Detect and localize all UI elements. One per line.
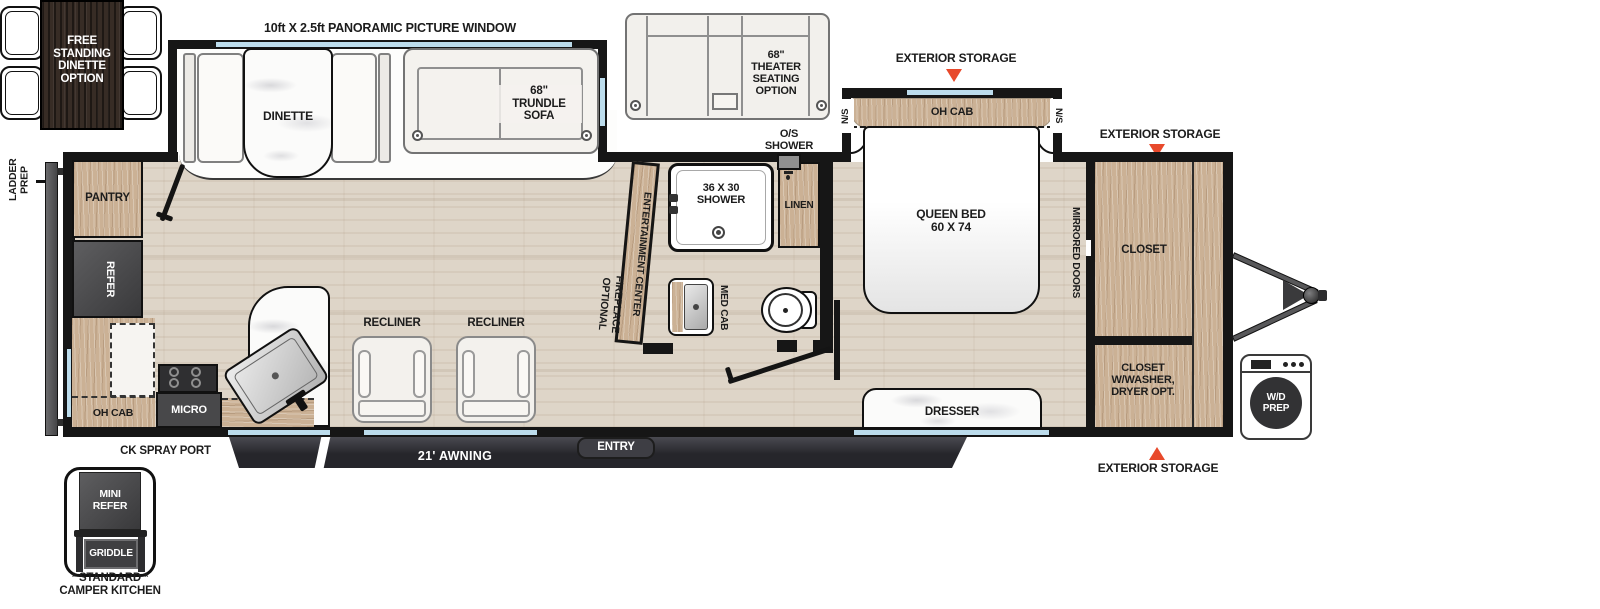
wd-prep-knob: [1283, 362, 1288, 367]
floorplan-canvas: FREE STANDING DINETTE OPTION 10ft X 2.5f…: [0, 0, 1600, 609]
refrigerator-label: REFER: [99, 246, 116, 312]
wall-closet-mid: [1086, 336, 1192, 345]
entry-label: ENTRY: [577, 441, 655, 454]
outside-shower: [777, 154, 801, 170]
fsd-chair-detail: [123, 71, 157, 115]
dinette-bench-seat: [331, 53, 377, 163]
dinette-bench-back: [378, 53, 391, 163]
shower-label: 36 X 30 SHOWER: [678, 182, 764, 206]
stove-burner: [169, 378, 179, 388]
trundle-sofa-label: 68" TRUNDLE SOFA: [496, 85, 582, 123]
recliner-2-arm: [462, 350, 475, 398]
theater-cupholder: [712, 93, 738, 110]
closet-label: CLOSET: [1102, 244, 1186, 257]
slide1-wall-left: [168, 40, 177, 162]
stove-burner: [191, 378, 201, 388]
wd-prep-label: W/D PREP: [1250, 392, 1302, 414]
kitchen-oh-cab-label: OH CAB: [76, 408, 150, 420]
dinette-bench-back: [183, 53, 196, 163]
fsd-chair-detail: [123, 11, 157, 55]
bedroom-oh-cab-label: OH CAB: [890, 106, 1014, 118]
slide1-side-window: [599, 77, 606, 127]
med-cab-counter: [672, 282, 683, 332]
exterior-storage-label-bottom: EXTERIOR STORAGE: [1080, 462, 1236, 475]
kitchen-oh-cab-outline: [110, 323, 155, 397]
recliner-2-arm: [517, 350, 530, 398]
theater-arm-line: [646, 16, 648, 116]
wd-prep-knob: [1299, 362, 1304, 367]
shower-valve: [669, 206, 678, 214]
ck-spray-port-label: CK SPRAY PORT: [93, 445, 238, 458]
outside-shower-faucet: [784, 171, 793, 174]
dinette-label: DINETTE: [245, 110, 331, 123]
shower-valve: [669, 194, 678, 202]
griddle-label: GRIDDLE: [82, 548, 140, 559]
bedroom-sliding-door: [834, 300, 840, 380]
exterior-storage-label-right: EXTERIOR STORAGE: [1084, 128, 1236, 141]
ladder-prep-label: LADDER PREP: [8, 150, 31, 210]
med-cab-faucet-dot: [693, 304, 699, 310]
griddle-top: [74, 530, 147, 537]
linen-label: LINEN: [777, 200, 821, 211]
fsd-label: FREE STANDING DINETTE OPTION: [42, 35, 122, 86]
kitchen-window: [227, 429, 331, 436]
pantry-label: PANTRY: [73, 192, 142, 205]
slide1-window: [215, 41, 573, 48]
toilet-dot: [783, 308, 788, 313]
panoramic-window-label: 10ft X 2.5ft PANORAMIC PICTURE WINDOW: [245, 22, 535, 36]
entertainment-center-base: [643, 343, 673, 354]
recliner-label-1: RECLINER: [352, 317, 432, 330]
stove-burner: [169, 367, 179, 377]
exterior-storage-label-top: EXTERIOR STORAGE: [880, 52, 1032, 65]
mirrored-door-gap: [1086, 240, 1091, 256]
shower-drain-dot: [716, 230, 721, 235]
living-window: [363, 429, 538, 436]
mini-refer-label: MINI REFER: [79, 489, 141, 512]
theater-arm-line: [808, 16, 810, 116]
hitch-coupler: [1318, 290, 1327, 301]
fsd-chair-detail: [5, 71, 39, 115]
wall-top-front: [1053, 152, 1233, 162]
exterior-storage-arrow-bottom: [1149, 447, 1165, 460]
kitchen-oh-cab-dashline: [72, 396, 155, 398]
outside-shower-label: O/S SHOWER: [756, 128, 822, 152]
dinette-bench-seat: [197, 53, 244, 163]
rear-bumper: [45, 162, 58, 436]
dresser-label: DRESSER: [880, 406, 1024, 419]
wall-bath-bedroom: [820, 162, 833, 353]
theater-back-line: [646, 35, 810, 37]
wd-prep-control: [1251, 360, 1271, 369]
recliner-1-arm: [358, 350, 371, 398]
camper-kitchen-caption: * STANDARD * CAMPER KITCHEN: [38, 572, 182, 597]
theater-console-line: [707, 16, 709, 116]
recliner-label-2: RECLINER: [456, 317, 536, 330]
microwave-label: MICRO: [157, 404, 221, 416]
exterior-storage-arrow-top: [946, 69, 962, 82]
awning-label: 21' AWNING: [300, 450, 610, 464]
bedroom-window: [853, 429, 1050, 436]
outside-shower-faucet-dot: [786, 175, 790, 180]
recliner-2-foot: [462, 400, 530, 417]
trundle-rivet: [412, 130, 423, 141]
trundle-rivet: [581, 130, 592, 141]
recliner-1-arm: [413, 350, 426, 398]
stove: [158, 364, 218, 393]
theater-rivet: [816, 100, 827, 111]
closet-washer-label: CLOSET W/WASHER, DRYER OPT.: [1096, 362, 1190, 398]
wd-prep-knob: [1291, 362, 1296, 367]
bath-wall-stub-left: [777, 340, 797, 352]
closet-divider: [1192, 162, 1194, 427]
wall-front: [1223, 152, 1233, 437]
fsd-chair-detail: [5, 11, 39, 55]
stove-burner: [191, 367, 201, 377]
theater-rivet: [630, 100, 641, 111]
recliner-1-foot: [358, 400, 426, 417]
queen-bed-label: QUEEN BED 60 X 74: [875, 208, 1027, 234]
wall-mirrored-doors: [1086, 162, 1095, 427]
theater-label: 68" THEATER SEATING OPTION: [744, 49, 808, 97]
mirrored-doors-label: MIRRORED DOORS: [1064, 178, 1081, 328]
bedslide-window: [906, 89, 994, 96]
med-cab-label: MED CAB: [714, 280, 729, 336]
theater-console-line: [741, 16, 743, 116]
